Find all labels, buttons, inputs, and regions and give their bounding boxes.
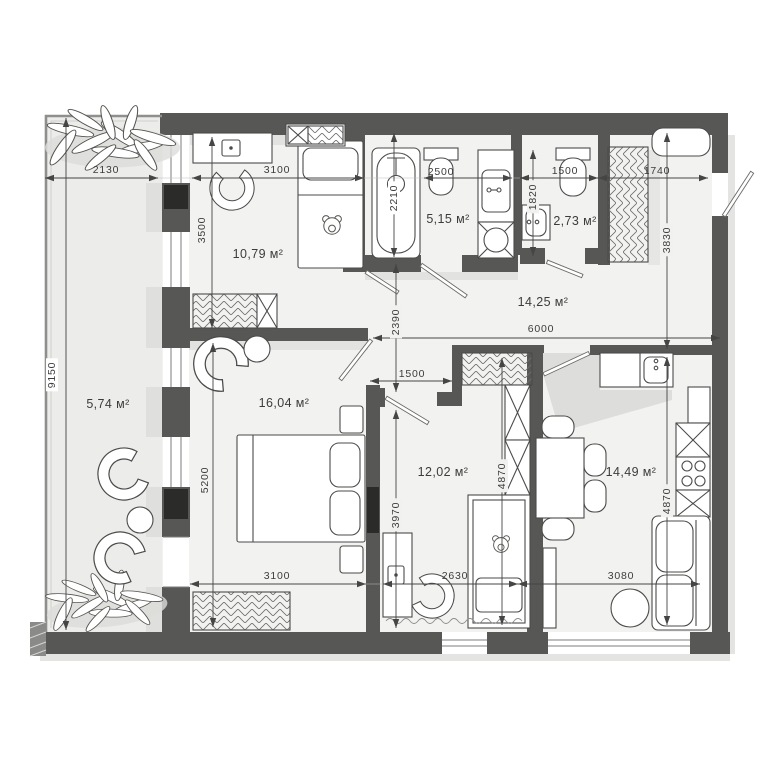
chair-icon — [542, 518, 574, 540]
dimension-label: 2210 — [388, 182, 400, 215]
dimension-label: 1820 — [527, 181, 539, 214]
entrance-door-swing-icon — [722, 171, 753, 217]
coffee-table-icon — [611, 589, 649, 627]
balcony-window — [163, 437, 189, 487]
dimension-label: 3970 — [390, 499, 402, 532]
floor-plan: 5,74 м² 10,79 м² 5,15 м² 2,73 м² 14,25 м… — [0, 0, 768, 768]
sink-counter-icon — [478, 150, 514, 222]
dimension-label: 2390 — [390, 306, 402, 339]
brick-pier — [30, 622, 46, 656]
room-area-label-bathroom: 5,15 м² — [426, 212, 469, 226]
sliding-door-panel — [543, 548, 556, 628]
kids-closet-icon — [505, 385, 530, 495]
floor-plan-canvas — [0, 0, 768, 768]
tall-cabinet-icon — [688, 387, 710, 423]
nightstand-icon — [340, 406, 363, 433]
dimension-label: 4870 — [661, 485, 673, 518]
entry-wardrobe-icon — [608, 147, 648, 262]
balcony-table-icon — [127, 507, 153, 533]
wardrobe-icon — [193, 592, 290, 630]
balcony-door-opening — [163, 537, 189, 587]
room-area-label-wc: 2,73 м² — [553, 214, 596, 228]
chair-icon — [584, 444, 606, 476]
room-area-label-kids-room: 12,02 м² — [418, 465, 469, 479]
nightstand-icon — [340, 546, 363, 573]
dimension-label: 2500 — [428, 166, 455, 178]
wardrobe-icon — [193, 294, 277, 328]
kids-window — [442, 634, 487, 652]
room-area-label-bedroom-top: 10,79 м² — [233, 247, 284, 261]
dimension-label: 5200 — [199, 464, 211, 497]
dimension-label: 6000 — [528, 323, 555, 335]
side-table-icon — [244, 336, 270, 362]
chair-icon — [584, 480, 606, 512]
room-area-label-kitchen-living: 14,49 м² — [606, 465, 657, 479]
kids-desk-icon — [383, 533, 412, 617]
dimension-label: 3100 — [264, 570, 291, 582]
kitchen-counter-icon — [600, 353, 673, 387]
dimension-label: 9150 — [46, 359, 58, 392]
chair-icon — [542, 416, 574, 438]
fridge-icon — [676, 423, 710, 457]
dimension-label: 1500 — [552, 165, 579, 177]
dimension-label: 3080 — [608, 570, 635, 582]
balcony-window — [163, 232, 189, 287]
overbed-wardrobe-icon — [286, 124, 345, 146]
sofa-icon — [652, 516, 710, 630]
kitchen-window — [548, 634, 690, 652]
crib-icon — [468, 495, 530, 628]
balcony-window — [163, 348, 189, 387]
bench-icon — [652, 128, 710, 156]
hall-wardrobe-icon — [462, 353, 532, 385]
dimension-label: 3500 — [196, 214, 208, 247]
stove-icon — [676, 457, 710, 490]
cabinet-icon — [676, 490, 710, 517]
room-area-label-balcony: 5,74 м² — [86, 397, 129, 411]
dimension-label: 4870 — [496, 460, 508, 493]
desk-icon — [193, 133, 272, 163]
dimension-label: 2130 — [93, 164, 120, 176]
room-area-label-hallway: 14,25 м² — [518, 295, 569, 309]
washing-machine-icon — [478, 222, 514, 258]
dimension-label: 3830 — [661, 224, 673, 257]
dimension-label: 1740 — [644, 165, 671, 177]
dimension-label: 2630 — [442, 570, 469, 582]
dimension-label: 3100 — [264, 164, 291, 176]
room-area-label-bedroom-main: 16,04 м² — [259, 396, 310, 410]
dimension-label: 1500 — [399, 368, 426, 380]
single-bed-icon — [298, 141, 363, 268]
